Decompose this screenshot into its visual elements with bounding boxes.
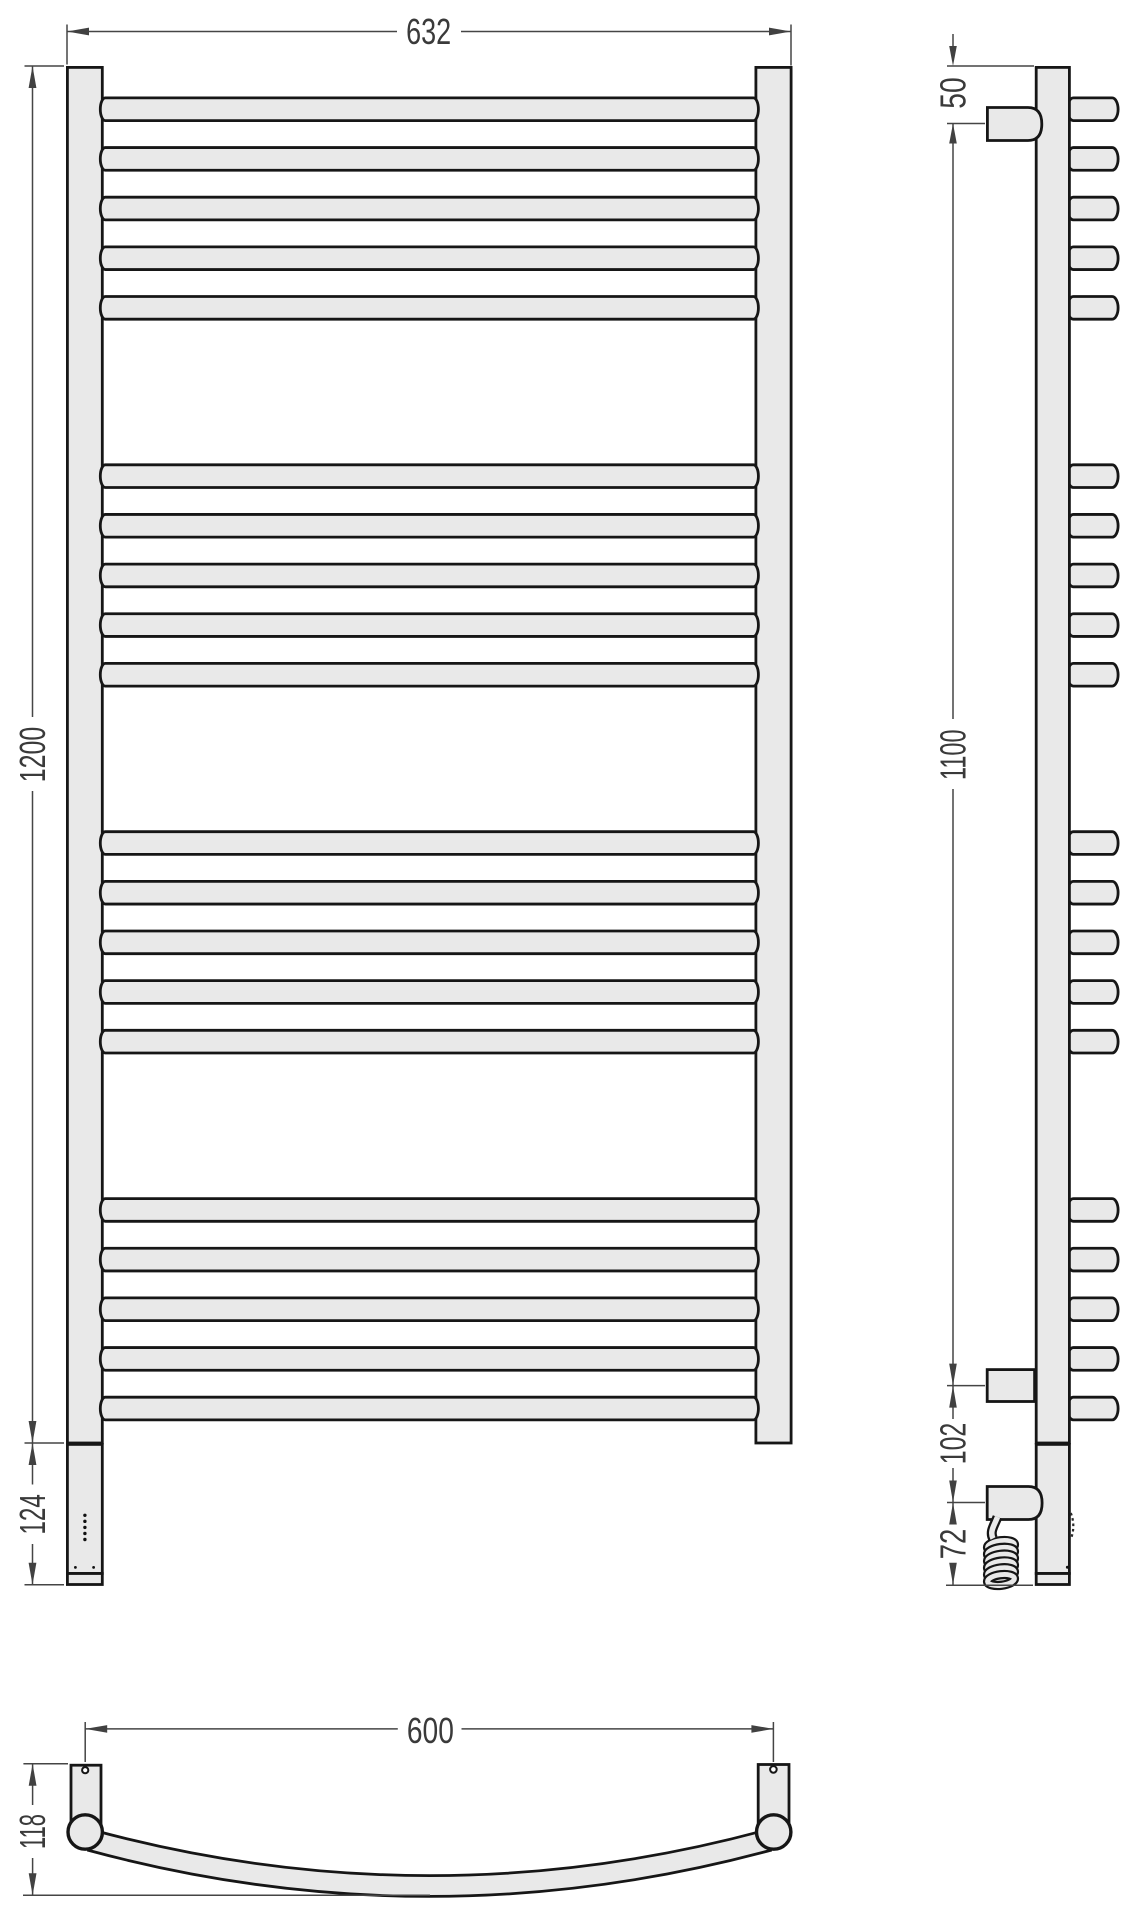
svg-text:600: 600: [407, 1710, 454, 1751]
svg-text:1200: 1200: [12, 727, 53, 783]
svg-text:124: 124: [12, 1494, 53, 1535]
svg-text:72: 72: [932, 1529, 973, 1560]
svg-text:1100: 1100: [932, 729, 973, 780]
svg-text:50: 50: [932, 77, 973, 109]
svg-text:102: 102: [932, 1423, 973, 1465]
svg-text:118: 118: [12, 1814, 53, 1849]
svg-text:632: 632: [406, 11, 451, 52]
